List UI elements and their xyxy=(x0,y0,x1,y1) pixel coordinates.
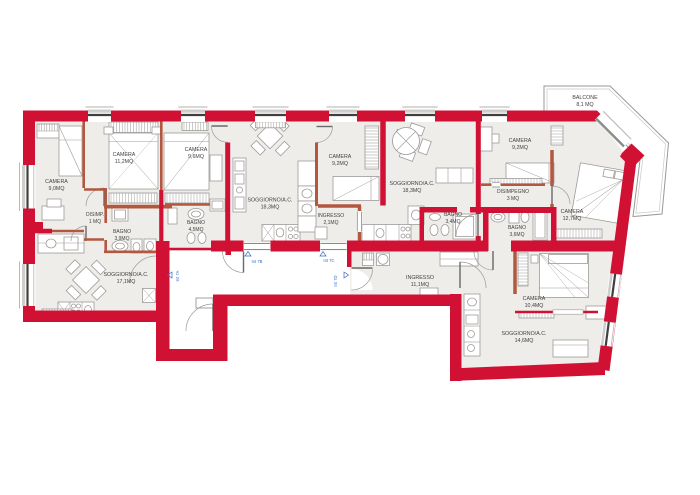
svg-text:SOGGIORNO/A.C.: SOGGIORNO/A.C. xyxy=(247,198,292,204)
svg-text:BAGNO: BAGNO xyxy=(508,225,526,231)
svg-text:Int 7B: Int 7B xyxy=(252,259,263,264)
svg-text:BAGNO: BAGNO xyxy=(113,229,131,235)
svg-text:14,6MQ: 14,6MQ xyxy=(515,338,534,344)
svg-text:11,2MQ: 11,2MQ xyxy=(115,159,133,165)
svg-text:CAMERA: CAMERA xyxy=(45,179,68,185)
svg-text:3,4MQ: 3,4MQ xyxy=(445,219,460,225)
svg-text:4,5MQ: 4,5MQ xyxy=(188,227,203,233)
svg-text:CAMERA: CAMERA xyxy=(329,154,352,160)
svg-text:11,1MQ: 11,1MQ xyxy=(411,282,429,288)
svg-text:DISIMPEGNO: DISIMPEGNO xyxy=(497,189,529,195)
svg-text:9,2MQ: 9,2MQ xyxy=(512,145,528,151)
svg-text:SOGGIORNO/A.C.: SOGGIORNO/A.C. xyxy=(389,181,434,187)
svg-text:Int 7A: Int 7A xyxy=(175,270,180,281)
svg-text:INGRESSO: INGRESSO xyxy=(406,275,434,281)
svg-text:SOGGIORNO/A.C.: SOGGIORNO/A.C. xyxy=(501,331,546,337)
svg-text:9,0MQ: 9,0MQ xyxy=(49,186,65,192)
svg-text:2,1MQ: 2,1MQ xyxy=(323,220,338,226)
svg-text:BALCONE: BALCONE xyxy=(572,95,598,101)
svg-text:BAGNO: BAGNO xyxy=(187,220,205,226)
svg-text:10,4MQ: 10,4MQ xyxy=(525,303,544,309)
svg-text:CAMERA: CAMERA xyxy=(509,138,532,144)
svg-text:9,2MQ: 9,2MQ xyxy=(332,161,348,167)
svg-text:1 MQ: 1 MQ xyxy=(89,219,101,225)
svg-text:DISIMP.: DISIMP. xyxy=(86,212,104,218)
svg-text:CAMERA: CAMERA xyxy=(561,209,584,215)
svg-text:17,1MQ: 17,1MQ xyxy=(117,279,136,285)
svg-text:3,6MQ: 3,6MQ xyxy=(509,232,524,238)
svg-text:3,9MQ: 3,9MQ xyxy=(114,236,129,242)
svg-text:9,6MQ: 9,6MQ xyxy=(188,154,204,160)
svg-text:12,7MQ: 12,7MQ xyxy=(563,216,582,222)
svg-text:Int 7C: Int 7C xyxy=(323,258,334,263)
svg-text:18,3MQ: 18,3MQ xyxy=(261,204,280,210)
svg-text:3 MQ: 3 MQ xyxy=(507,196,519,202)
svg-text:BAGNO: BAGNO xyxy=(444,212,462,218)
svg-text:CAMERA: CAMERA xyxy=(185,147,208,153)
svg-text:CAMERA: CAMERA xyxy=(523,296,546,302)
svg-text:CAMERA: CAMERA xyxy=(113,152,136,158)
svg-text:18,3MQ: 18,3MQ xyxy=(403,188,422,194)
svg-text:SOGGIORNO/A.C.: SOGGIORNO/A.C. xyxy=(103,272,148,278)
svg-text:INGRESSO: INGRESSO xyxy=(318,213,345,219)
svg-text:Int 7D: Int 7D xyxy=(333,275,338,286)
svg-text:8,1 MQ: 8,1 MQ xyxy=(576,102,593,108)
